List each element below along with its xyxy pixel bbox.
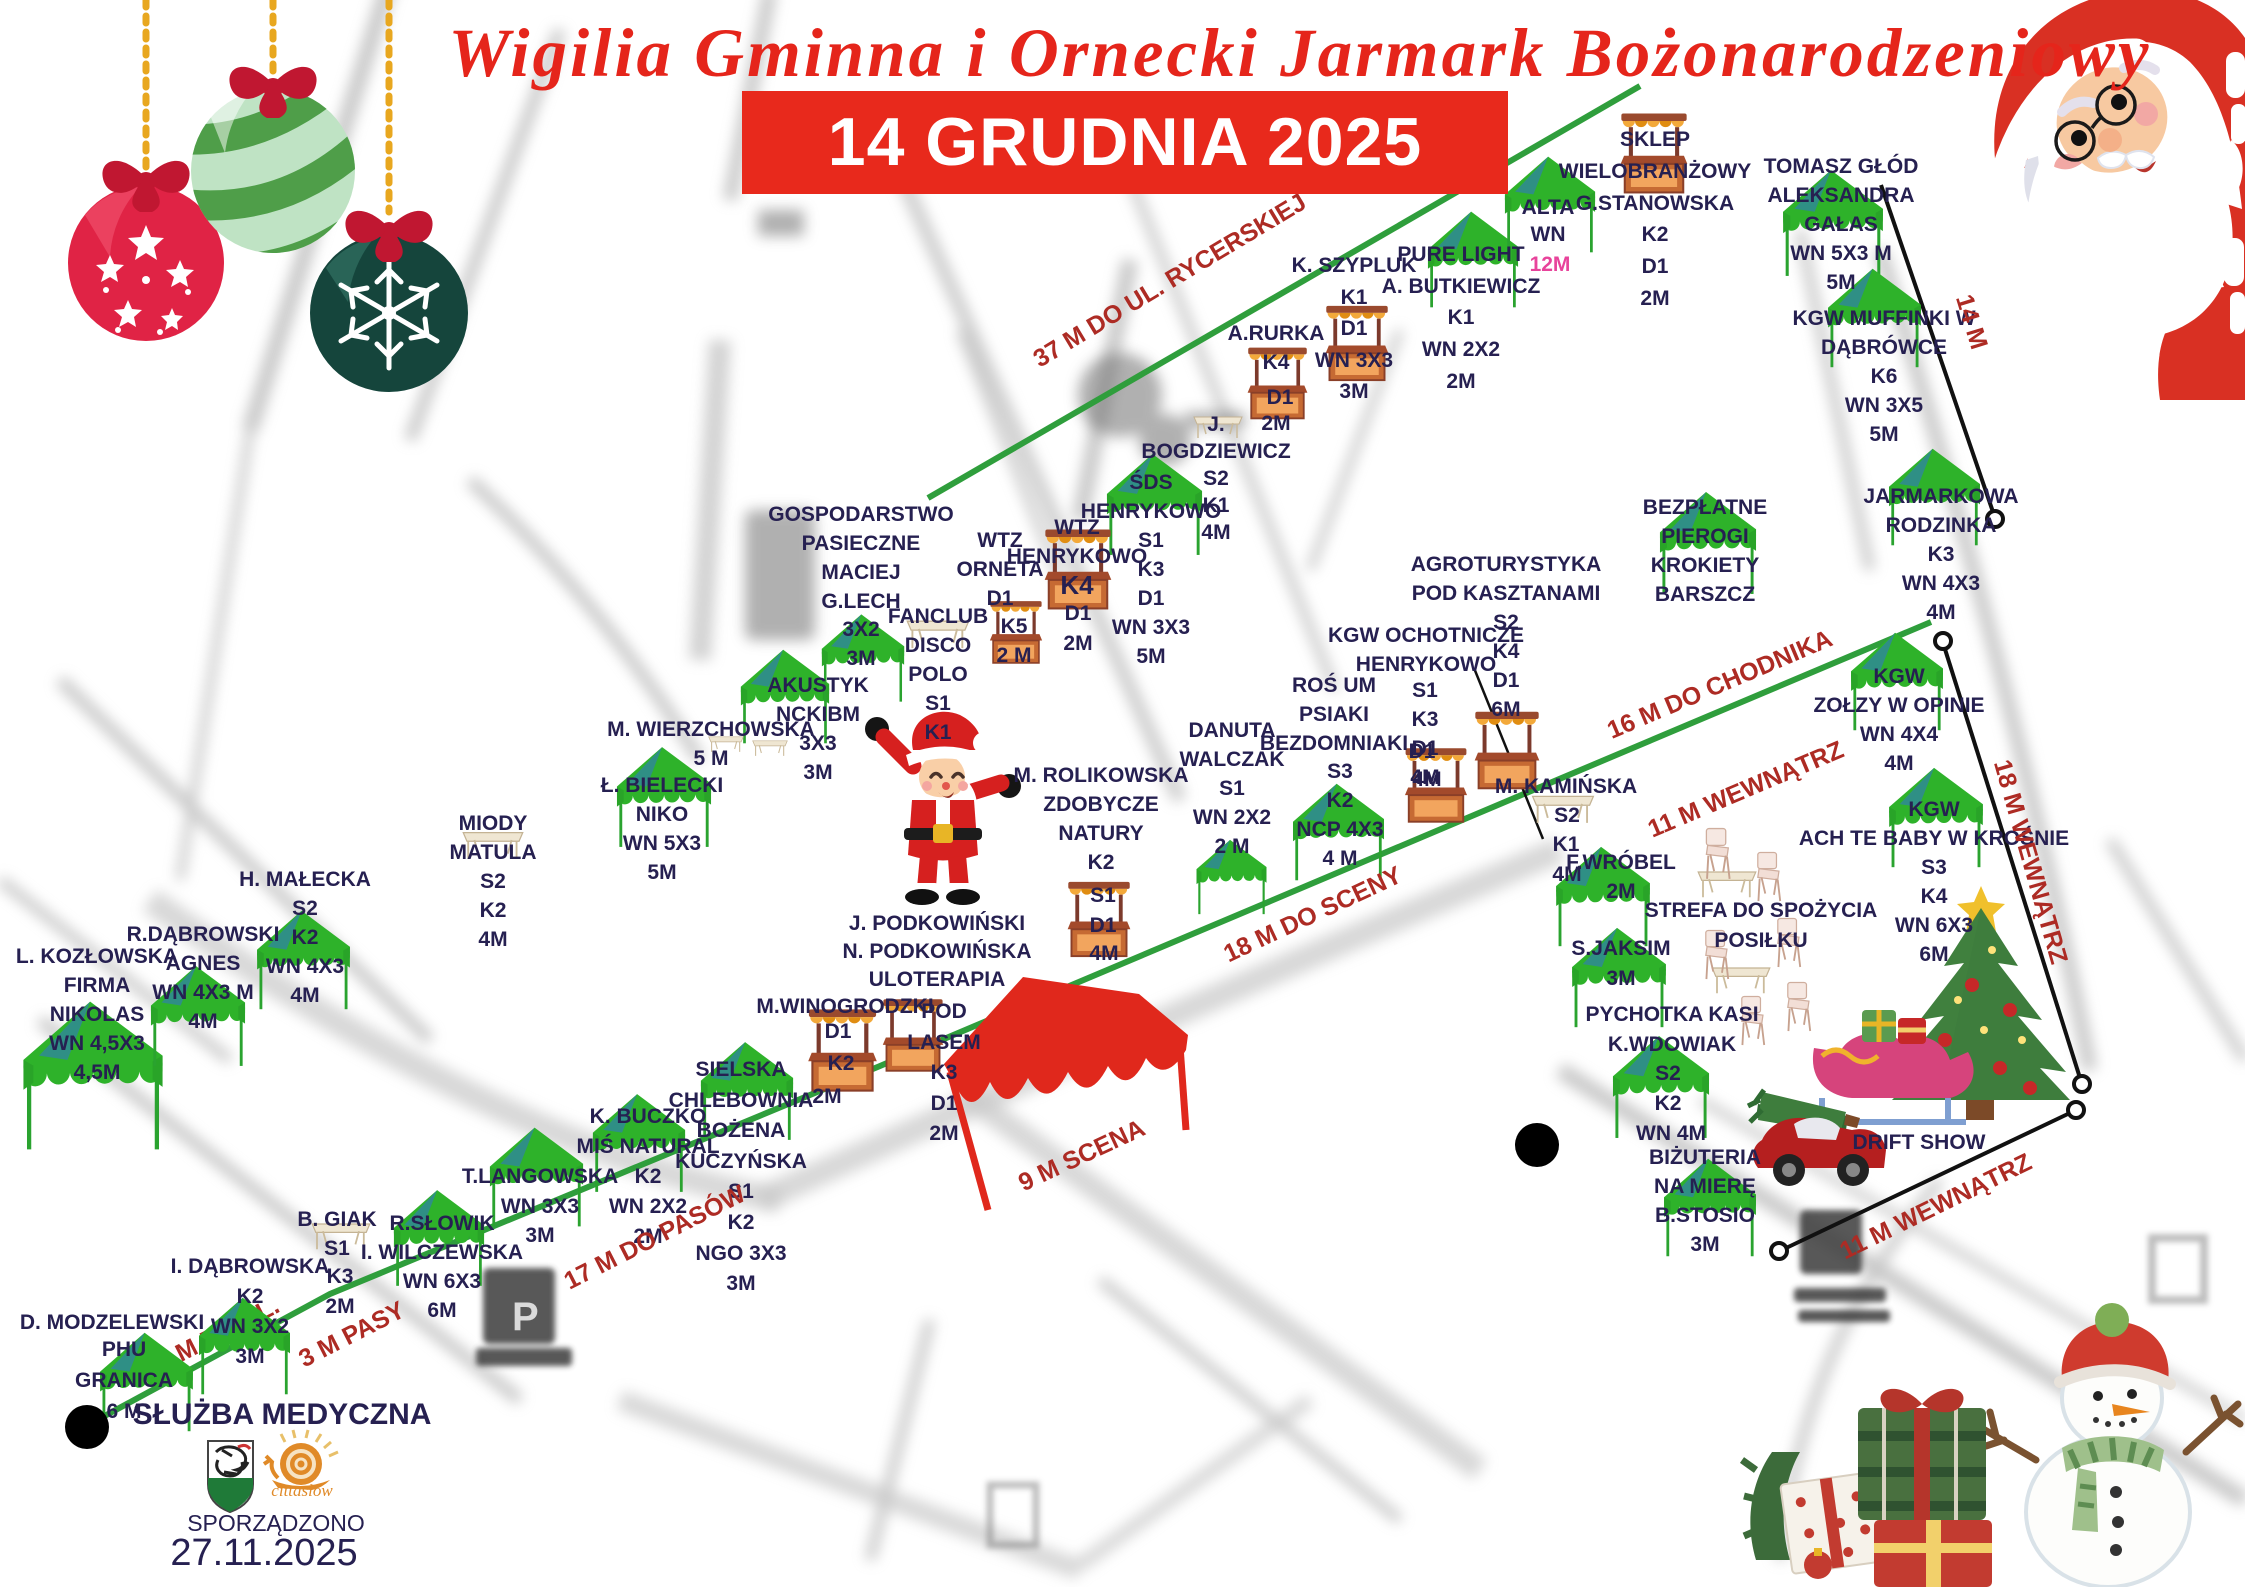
svg-text:cittaslow: cittaslow xyxy=(271,1481,333,1500)
